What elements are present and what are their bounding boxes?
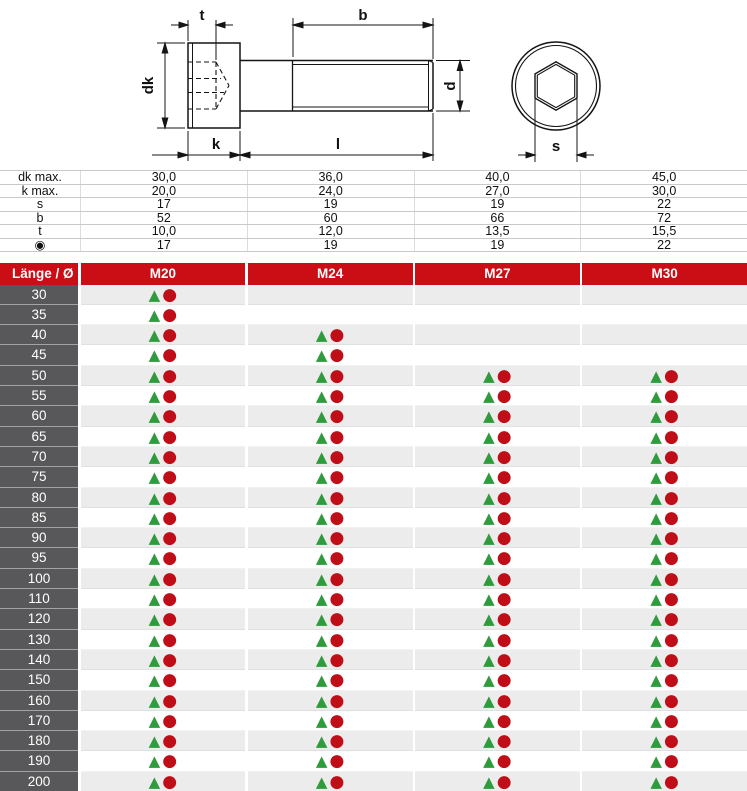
length-label: 35 [0,305,78,325]
availability-triangle-icon: ▲ [483,671,495,689]
availability-circle-icon: ● [664,528,679,548]
availability-triangle-icon: ▲ [149,346,161,364]
availability-cell: ▲● [415,711,580,731]
spec-row: k max.20,024,027,030,0 [0,184,747,198]
availability-cell: ▲● [81,305,246,325]
length-label: 190 [0,751,78,771]
availability-circle-icon: ● [329,630,344,650]
table-row: 160▲●▲●▲●▲● [0,691,747,711]
table-row: 60▲●▲●▲●▲● [0,406,747,426]
availability-circle-icon: ● [162,508,177,528]
availability-triangle-icon: ▲ [149,509,161,527]
availability-circle-icon: ● [329,609,344,629]
spec-row-label: k max. [0,185,80,198]
availability-triangle-icon: ▲ [650,549,662,567]
screw-technical-drawing: t b dk d k l s [0,0,747,165]
length-label: 120 [0,609,78,629]
availability-circle-icon: ● [162,447,177,467]
availability-triangle-icon: ▲ [149,387,161,405]
availability-triangle-icon: ▲ [149,570,161,588]
table-row: 150▲●▲●▲●▲● [0,670,747,690]
availability-cell: ▲● [582,447,747,467]
availability-circle-icon: ● [497,386,512,406]
length-label: 45 [0,345,78,365]
spec-value: 30,0 [80,171,247,184]
availability-triangle-icon: ▲ [650,631,662,649]
availability-triangle-icon: ▲ [149,752,161,770]
length-label: 110 [0,589,78,609]
availability-cell: ▲● [248,751,413,771]
availability-triangle-icon: ▲ [149,732,161,750]
dim-t [171,20,233,60]
availability-triangle-icon: ▲ [149,712,161,730]
availability-cell: ▲● [81,569,246,589]
availability-triangle-icon: ▲ [650,651,662,669]
spec-value: 52 [80,212,247,225]
availability-cell: ▲● [582,488,747,508]
availability-cell: ▲● [415,548,580,568]
size-column-header: M30 [582,263,747,285]
availability-cell: ▲● [582,366,747,386]
availability-circle-icon: ● [162,711,177,731]
availability-circle-icon: ● [162,650,177,670]
dim-label-l: l [336,136,340,153]
availability-triangle-icon: ▲ [316,732,328,750]
availability-cell: ▲● [81,772,246,791]
availability-cell [415,325,580,345]
availability-triangle-icon: ▲ [316,651,328,669]
availability-cell [415,285,580,305]
availability-circle-icon: ● [162,467,177,487]
availability-cell: ▲● [415,447,580,467]
availability-triangle-icon: ▲ [316,712,328,730]
availability-circle-icon: ● [497,731,512,751]
availability-cell: ▲● [248,630,413,650]
availability-triangle-icon: ▲ [483,448,495,466]
table-row: 80▲●▲●▲●▲● [0,488,747,508]
availability-circle-icon: ● [497,467,512,487]
availability-circle-icon: ● [162,345,177,365]
availability-circle-icon: ● [664,569,679,589]
spec-value: 22 [580,239,747,251]
availability-circle-icon: ● [664,630,679,650]
table-row: 130▲●▲●▲●▲● [0,630,747,650]
availability-cell: ▲● [415,406,580,426]
availability-cell [582,345,747,365]
availability-triangle-icon: ▲ [149,489,161,507]
availability-cell: ▲● [248,488,413,508]
availability-cell: ▲● [248,427,413,447]
spec-value: 40,0 [414,171,581,184]
dim-label-t: t [200,7,205,24]
availability-circle-icon: ● [162,305,177,325]
dim-label-dk: dk [140,76,157,94]
availability-cell: ▲● [582,691,747,711]
availability-cell [248,305,413,325]
availability-circle-icon: ● [329,366,344,386]
availability-cell: ▲● [81,406,246,426]
availability-circle-icon: ● [329,772,344,791]
availability-cell: ▲● [415,427,580,447]
availability-circle-icon: ● [497,589,512,609]
availability-triangle-icon: ▲ [483,570,495,588]
availability-triangle-icon: ▲ [149,326,161,344]
dim-label-s: s [552,138,560,155]
availability-cell: ▲● [582,508,747,528]
availability-triangle-icon: ▲ [149,773,161,791]
length-label: 30 [0,285,78,305]
availability-circle-icon: ● [329,508,344,528]
availability-triangle-icon: ▲ [149,468,161,486]
spec-row: dk max.30,036,040,045,0 [0,170,747,184]
availability-triangle-icon: ▲ [483,692,495,710]
availability-triangle-icon: ▲ [316,549,328,567]
availability-cell: ▲● [81,670,246,690]
spec-row-label: t [0,225,80,238]
spec-row: b52606672 [0,211,747,225]
table-row: 190▲●▲●▲●▲● [0,751,747,771]
availability-cell: ▲● [582,548,747,568]
spec-value: 36,0 [247,171,414,184]
availability-circle-icon: ● [329,528,344,548]
spec-value: 72 [580,212,747,225]
table-row: 70▲●▲●▲●▲● [0,447,747,467]
availability-triangle-icon: ▲ [149,590,161,608]
availability-cell: ▲● [582,467,747,487]
availability-triangle-icon: ▲ [483,529,495,547]
availability-triangle-icon: ▲ [650,509,662,527]
spec-value: 60 [247,212,414,225]
size-column-header: M27 [415,263,580,285]
availability-circle-icon: ● [329,711,344,731]
availability-circle-icon: ● [329,670,344,690]
spec-value: 13,5 [414,225,581,238]
length-label: 100 [0,569,78,589]
availability-cell: ▲● [81,731,246,751]
availability-cell: ▲● [415,670,580,690]
availability-cell: ▲● [248,589,413,609]
availability-cell: ▲● [81,447,246,467]
availability-cell: ▲● [248,366,413,386]
length-label: 90 [0,528,78,548]
table-row: 55▲●▲●▲●▲● [0,386,747,406]
availability-cell: ▲● [81,325,246,345]
availability-cell: ▲● [81,366,246,386]
length-label: 70 [0,447,78,467]
length-label: 80 [0,488,78,508]
availability-cell: ▲● [81,528,246,548]
availability-cell: ▲● [415,751,580,771]
availability-cell: ▲● [582,569,747,589]
availability-triangle-icon: ▲ [316,448,328,466]
length-label: 180 [0,731,78,751]
availability-cell: ▲● [415,366,580,386]
availability-cell: ▲● [248,609,413,629]
availability-cell: ▲● [582,630,747,650]
availability-circle-icon: ● [162,427,177,447]
availability-cell: ▲● [81,285,246,305]
availability-cell: ▲● [81,345,246,365]
availability-triangle-icon: ▲ [483,428,495,446]
availability-circle-icon: ● [664,386,679,406]
availability-circle-icon: ● [329,548,344,568]
spec-value: 22 [580,198,747,211]
availability-cell: ▲● [415,630,580,650]
availability-cell: ▲● [582,731,747,751]
availability-cell: ▲● [582,650,747,670]
availability-cell: ▲● [415,386,580,406]
availability-circle-icon: ● [497,548,512,568]
availability-circle-icon: ● [329,589,344,609]
availability-cell: ▲● [582,528,747,548]
spec-value: 19 [247,239,414,251]
availability-cell: ▲● [81,589,246,609]
availability-circle-icon: ● [497,406,512,426]
spec-value: 10,0 [80,225,247,238]
length-label: 85 [0,508,78,528]
availability-triangle-icon: ▲ [149,671,161,689]
availability-cell: ▲● [81,630,246,650]
availability-circle-icon: ● [329,427,344,447]
availability-table: 30▲●35▲●40▲●▲●45▲●▲●50▲●▲●▲●▲●55▲●▲●▲●▲●… [0,285,747,791]
availability-triangle-icon: ▲ [650,732,662,750]
availability-triangle-icon: ▲ [650,529,662,547]
length-label: 60 [0,406,78,426]
length-label: 160 [0,691,78,711]
spec-value: 15,5 [580,225,747,238]
availability-circle-icon: ● [497,691,512,711]
availability-circle-icon: ● [664,467,679,487]
availability-cell [248,285,413,305]
availability-cell: ▲● [248,711,413,731]
availability-cell: ▲● [248,548,413,568]
spec-value: 20,0 [80,185,247,198]
spec-row: ◉17191922 [0,238,747,252]
availability-triangle-icon: ▲ [650,752,662,770]
availability-circle-icon: ● [329,691,344,711]
spec-value: 19 [414,239,581,251]
table-row: 120▲●▲●▲●▲● [0,609,747,629]
availability-triangle-icon: ▲ [149,428,161,446]
availability-cell: ▲● [582,427,747,447]
availability-triangle-icon: ▲ [149,286,161,304]
availability-cell [415,345,580,365]
availability-circle-icon: ● [497,711,512,731]
availability-cell: ▲● [81,609,246,629]
availability-triangle-icon: ▲ [316,428,328,446]
length-label: 50 [0,366,78,386]
availability-cell: ▲● [415,731,580,751]
dim-b [293,18,433,59]
availability-triangle-icon: ▲ [650,448,662,466]
availability-triangle-icon: ▲ [316,468,328,486]
spec-row: s17191922 [0,197,747,211]
availability-triangle-icon: ▲ [316,570,328,588]
spec-value: 12,0 [247,225,414,238]
table-row: 180▲●▲●▲●▲● [0,731,747,751]
table-row: 50▲●▲●▲●▲● [0,366,747,386]
availability-cell: ▲● [248,406,413,426]
availability-circle-icon: ● [329,731,344,751]
availability-triangle-icon: ▲ [483,610,495,628]
availability-triangle-icon: ▲ [483,590,495,608]
availability-cell: ▲● [415,650,580,670]
availability-cell: ▲● [415,488,580,508]
availability-circle-icon: ● [664,589,679,609]
availability-circle-icon: ● [664,427,679,447]
availability-cell: ▲● [81,650,246,670]
availability-circle-icon: ● [329,467,344,487]
availability-circle-icon: ● [497,609,512,629]
spec-value: 24,0 [247,185,414,198]
availability-triangle-icon: ▲ [316,489,328,507]
length-label: 150 [0,670,78,690]
availability-cell [582,325,747,345]
availability-circle-icon: ● [497,488,512,508]
availability-triangle-icon: ▲ [316,752,328,770]
availability-circle-icon: ● [497,528,512,548]
availability-triangle-icon: ▲ [650,468,662,486]
size-header-row: Länge / Ø M20M24M27M30 [0,263,747,285]
table-row: 35▲● [0,305,747,325]
availability-cell: ▲● [81,386,246,406]
availability-circle-icon: ● [497,366,512,386]
availability-cell: ▲● [582,386,747,406]
availability-triangle-icon: ▲ [149,529,161,547]
availability-cell: ▲● [248,691,413,711]
availability-triangle-icon: ▲ [483,631,495,649]
availability-circle-icon: ● [664,609,679,629]
spec-value: 17 [80,239,247,251]
availability-circle-icon: ● [329,447,344,467]
dim-label-d: d [442,81,459,90]
availability-circle-icon: ● [664,670,679,690]
availability-circle-icon: ● [162,691,177,711]
availability-circle-icon: ● [162,488,177,508]
availability-circle-icon: ● [664,731,679,751]
availability-cell: ▲● [248,325,413,345]
availability-circle-icon: ● [329,650,344,670]
side-view-drawing [152,18,470,161]
availability-circle-icon: ● [664,548,679,568]
availability-triangle-icon: ▲ [316,671,328,689]
availability-triangle-icon: ▲ [650,712,662,730]
availability-triangle-icon: ▲ [149,610,161,628]
availability-cell: ▲● [81,691,246,711]
table-row: 65▲●▲●▲●▲● [0,427,747,447]
availability-circle-icon: ● [329,488,344,508]
availability-circle-icon: ● [664,366,679,386]
availability-triangle-icon: ▲ [316,367,328,385]
availability-cell: ▲● [415,609,580,629]
length-label: 95 [0,548,78,568]
availability-cell: ▲● [81,488,246,508]
availability-circle-icon: ● [329,345,344,365]
availability-cell: ▲● [415,772,580,791]
availability-triangle-icon: ▲ [316,407,328,425]
availability-cell: ▲● [248,528,413,548]
availability-triangle-icon: ▲ [650,428,662,446]
table-row: 75▲●▲●▲●▲● [0,467,747,487]
availability-triangle-icon: ▲ [149,306,161,324]
availability-triangle-icon: ▲ [316,773,328,791]
availability-cell: ▲● [415,467,580,487]
availability-circle-icon: ● [497,569,512,589]
availability-triangle-icon: ▲ [483,651,495,669]
availability-triangle-icon: ▲ [316,692,328,710]
availability-circle-icon: ● [497,670,512,690]
table-row: 170▲●▲●▲●▲● [0,711,747,731]
spec-value: 30,0 [580,185,747,198]
availability-triangle-icon: ▲ [650,367,662,385]
availability-triangle-icon: ▲ [149,631,161,649]
availability-triangle-icon: ▲ [483,712,495,730]
hex-socket-hidden-lines [188,62,229,109]
availability-cell: ▲● [582,711,747,731]
availability-circle-icon: ● [497,508,512,528]
availability-cell: ▲● [81,508,246,528]
availability-circle-icon: ● [162,528,177,548]
availability-cell: ▲● [582,406,747,426]
dim-k [152,131,240,161]
availability-circle-icon: ● [162,772,177,791]
socket-symbol-label: ◉ [0,239,80,251]
availability-circle-icon: ● [162,731,177,751]
availability-triangle-icon: ▲ [149,448,161,466]
availability-cell: ▲● [81,711,246,731]
spec-row-label: dk max. [0,171,80,184]
availability-circle-icon: ● [162,548,177,568]
availability-cell: ▲● [81,427,246,447]
length-label: 65 [0,427,78,447]
availability-circle-icon: ● [162,751,177,771]
availability-cell: ▲● [248,508,413,528]
spec-row-label: b [0,212,80,225]
availability-triangle-icon: ▲ [149,367,161,385]
availability-circle-icon: ● [162,285,177,305]
availability-circle-icon: ● [162,325,177,345]
table-row: 90▲●▲●▲●▲● [0,528,747,548]
availability-triangle-icon: ▲ [650,671,662,689]
availability-circle-icon: ● [497,427,512,447]
spec-value: 45,0 [580,171,747,184]
availability-cell: ▲● [248,670,413,690]
availability-triangle-icon: ▲ [316,326,328,344]
availability-triangle-icon: ▲ [316,529,328,547]
availability-circle-icon: ● [497,447,512,467]
availability-triangle-icon: ▲ [483,549,495,567]
availability-triangle-icon: ▲ [149,692,161,710]
availability-circle-icon: ● [497,630,512,650]
table-row: 85▲●▲●▲●▲● [0,508,747,528]
availability-circle-icon: ● [162,366,177,386]
availability-triangle-icon: ▲ [650,773,662,791]
availability-triangle-icon: ▲ [483,773,495,791]
table-row: 140▲●▲●▲●▲● [0,650,747,670]
size-column-header: M20 [81,263,246,285]
availability-cell: ▲● [248,467,413,487]
availability-circle-icon: ● [162,406,177,426]
availability-circle-icon: ● [329,406,344,426]
table-row: 100▲●▲●▲●▲● [0,569,747,589]
availability-circle-icon: ● [162,609,177,629]
dim-label-b: b [358,7,367,24]
availability-circle-icon: ● [329,751,344,771]
length-label: 140 [0,650,78,670]
availability-triangle-icon: ▲ [316,346,328,364]
availability-circle-icon: ● [497,751,512,771]
size-column-header: M24 [248,263,413,285]
